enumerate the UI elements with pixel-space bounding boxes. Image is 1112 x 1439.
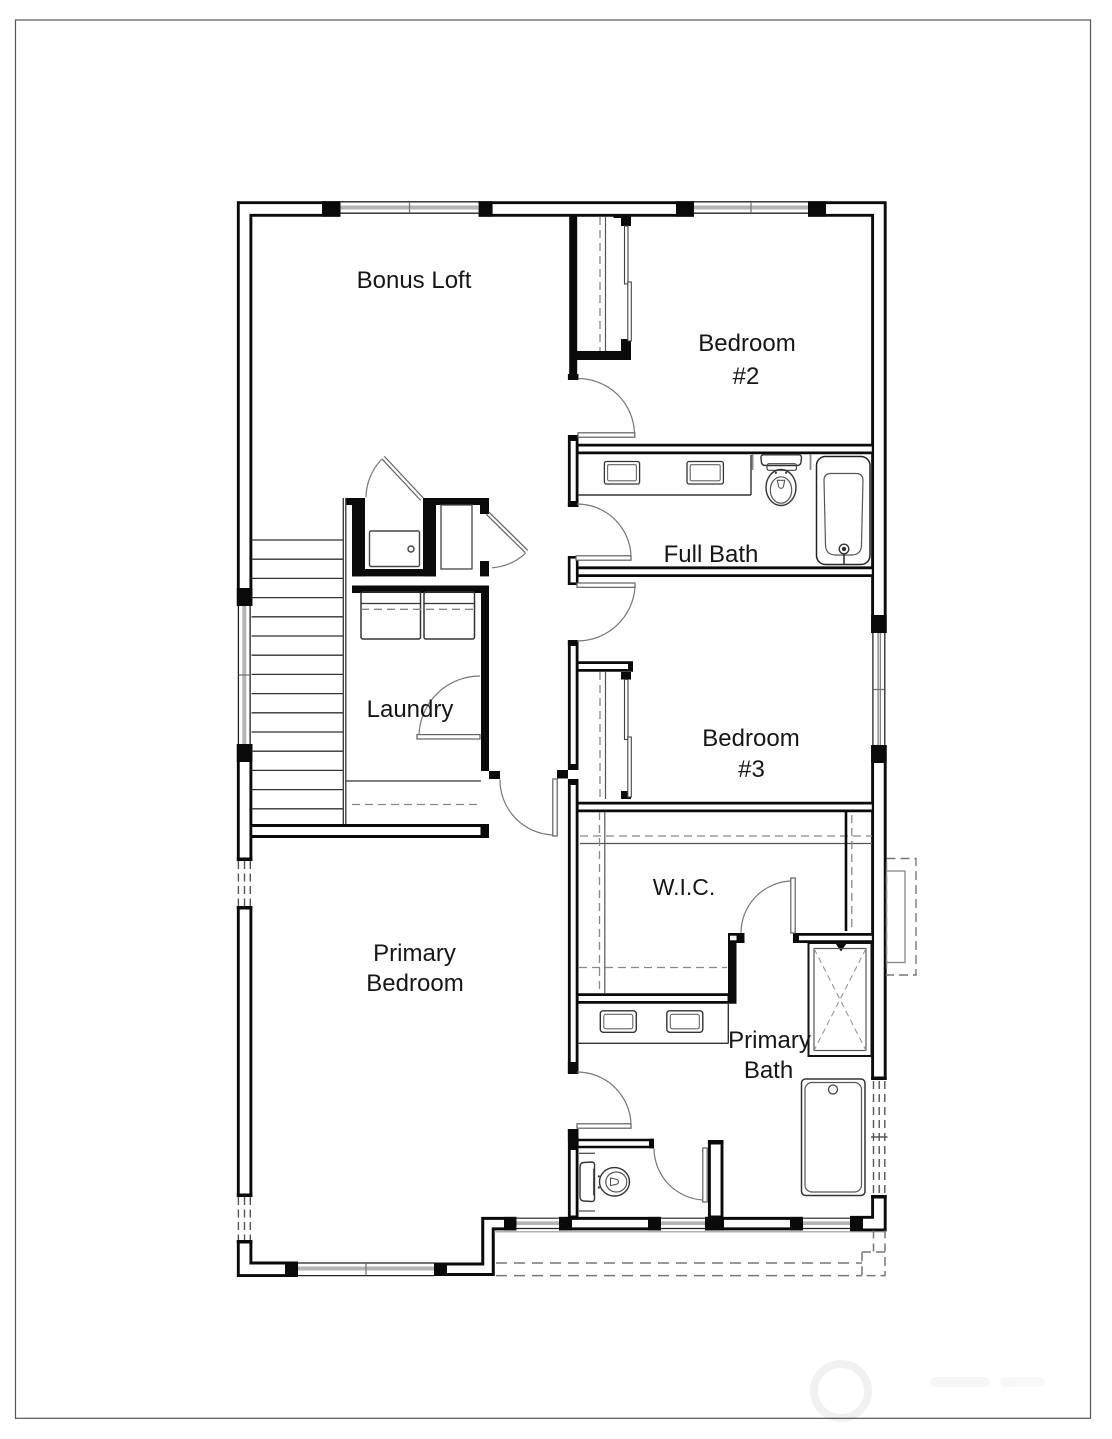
- svg-text:Bonus Loft: Bonus Loft: [357, 267, 472, 294]
- svg-text:Bedroom: Bedroom: [698, 330, 795, 357]
- svg-text:Bath: Bath: [744, 1057, 793, 1084]
- svg-text:Primary: Primary: [728, 1027, 811, 1054]
- svg-text:#2: #2: [733, 363, 760, 390]
- svg-text:Full Bath: Full Bath: [664, 541, 759, 568]
- svg-text:Bedroom: Bedroom: [702, 725, 799, 752]
- svg-text:W.I.C.: W.I.C.: [653, 874, 716, 900]
- svg-text:Bedroom: Bedroom: [366, 970, 463, 997]
- svg-text:Primary: Primary: [373, 940, 456, 967]
- svg-text:#3: #3: [738, 756, 765, 783]
- svg-text:Laundry: Laundry: [367, 696, 454, 723]
